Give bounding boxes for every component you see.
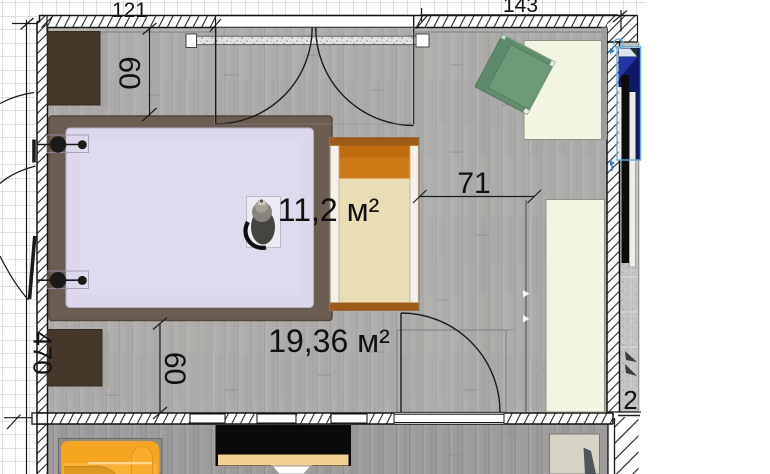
svg-text:60: 60 [113, 56, 146, 89]
svg-text:60: 60 [158, 352, 191, 385]
svg-text:2: 2 [623, 385, 637, 415]
svg-text:143: 143 [503, 0, 538, 17]
svg-text:470: 470 [28, 331, 58, 374]
svg-text:19,36 м²: 19,36 м² [268, 323, 390, 359]
svg-text:11,2 м²: 11,2 м² [278, 192, 380, 228]
svg-text:71: 71 [457, 167, 490, 200]
svg-text:121: 121 [112, 0, 147, 22]
